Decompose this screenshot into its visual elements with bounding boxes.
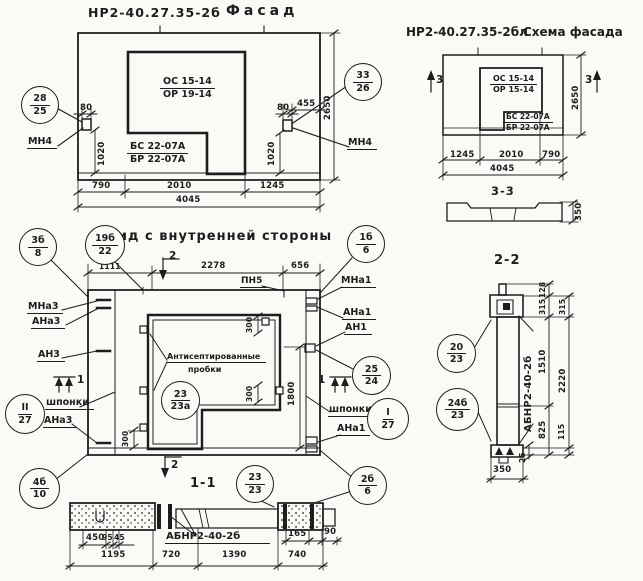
facade-panel-mark: БС 22-07А БР 22-07А <box>127 141 188 167</box>
callout-20-23: 20 23 <box>437 334 476 373</box>
dim-2220: 2220 <box>559 369 568 393</box>
dim-656: 656 <box>291 261 309 271</box>
dim-740: 740 <box>288 550 306 560</box>
callout-value-top: 2б <box>358 474 377 486</box>
callout-value-bottom: 23 <box>451 410 464 421</box>
callout-value-top: 19б <box>92 233 118 245</box>
panel-mark-top: БС 22-07А <box>127 141 188 154</box>
label-pn5: ПН5 <box>240 276 267 288</box>
label-shponki-left: шпонки <box>45 397 94 410</box>
panel-mark-top: БС 22-07А <box>503 112 553 123</box>
schema-panel-mark: БС 22-07А БР 22-07А <box>503 112 553 133</box>
callout-4b-10: 4б 10 <box>19 468 60 509</box>
callout-28-25: 28 25 <box>21 86 59 124</box>
dim-1195: 1195 <box>101 550 125 560</box>
dim-455: 455 <box>297 99 315 109</box>
label-an3: АН3 <box>37 349 65 362</box>
callout-value-bottom: 8 <box>35 248 42 259</box>
dim-350-s33: 350 <box>575 203 584 221</box>
dim-25: 25 <box>519 452 527 463</box>
inner-view-linework <box>50 258 353 510</box>
label-ana3: АНа3 <box>31 316 65 329</box>
callout-23-23: 23 23 <box>236 465 274 503</box>
dim-4045-schema: 4045 <box>490 164 514 174</box>
window-mark-top: ОС 15-14 <box>160 76 215 89</box>
schema-code: НР2-40.27.35-2бл <box>406 25 528 39</box>
section-marker-2-top: 2 <box>169 250 176 262</box>
label-mna1: МНа1 <box>340 275 376 288</box>
section-2-2-title: 2-2 <box>494 253 521 268</box>
anchor-label-mn4-left: МН4 <box>27 136 57 149</box>
dim-350-s22: 350 <box>493 465 511 475</box>
callout-value-bottom: 23а <box>171 401 191 412</box>
section-1-1-title: 1-1 <box>190 476 217 491</box>
callout-33-26: 33 26 <box>344 63 382 101</box>
callout-value-bottom: 27 <box>381 420 394 431</box>
section-2-2-panel-code: АБНР2-40-2б <box>524 356 534 432</box>
section-1-1-panel-code: АБНР2-40-2б <box>165 531 270 544</box>
callout-value-top: I <box>383 407 393 419</box>
facade-title: Фасад <box>226 3 298 19</box>
dim-1510: 1510 <box>539 350 548 374</box>
dim-825: 825 <box>539 421 548 439</box>
section-marker-3-left: 3 <box>436 74 443 86</box>
callout-I-27: I 27 <box>367 398 409 440</box>
callout-value-top: 4б <box>30 477 49 489</box>
dim-4045: 4045 <box>176 195 200 205</box>
dim-1245: 1245 <box>260 181 284 191</box>
label-ana3-bottom: АНа3 <box>43 415 77 428</box>
window-mark-top: ОС 15-14 <box>490 74 537 85</box>
dim-128: 128 <box>539 282 547 298</box>
callout-23-23a: 23 23а <box>161 381 200 420</box>
dim-2650-schema: 2650 <box>572 86 581 110</box>
dim-80-left: 80 <box>80 103 92 113</box>
dim-315-outer: 315 <box>559 299 567 315</box>
dim-2650-facade: 2650 <box>324 96 333 120</box>
schema-window-mark: ОС 15-14 ОР 15-14 <box>490 74 537 96</box>
section-3-3-title: 3-3 <box>491 184 515 198</box>
callout-value-bottom: 6 <box>364 486 371 497</box>
callout-value-bottom: 27 <box>18 415 31 426</box>
dim-790: 790 <box>92 181 110 191</box>
callout-value-bottom: 22 <box>98 246 111 257</box>
label-an1: АН1 <box>344 322 372 335</box>
dim-165: 165 <box>288 529 306 539</box>
dim-80-right: 80 <box>277 103 289 113</box>
window-mark-bottom: ОР 19-14 <box>163 89 212 101</box>
section-marker-1-right: 1 <box>318 374 325 386</box>
dim-1020-right: 1020 <box>268 142 277 166</box>
callout-value-bottom: 10 <box>33 489 46 500</box>
callout-value-top: 20 <box>447 342 466 354</box>
callout-value-top: 24б <box>445 398 471 410</box>
dim-2010-schema: 2010 <box>499 150 523 160</box>
section-marker-2-bottom: 2 <box>171 459 178 471</box>
drawing-sheet: НР2-40.27.35-2б Фасад ОС 15-14 ОР 19-14 … <box>0 0 643 581</box>
callout-II-27: II 27 <box>5 394 45 434</box>
callout-value-top: II <box>18 402 31 414</box>
callout-value-top: 23 <box>171 389 190 401</box>
schema-title: Схема фасада <box>523 25 623 39</box>
inner-view-title: Вид с внутренней стороны <box>107 229 332 244</box>
callout-value-top: 25 <box>362 364 381 376</box>
section-marker-3-right: 3 <box>585 74 592 86</box>
callout-value-bottom: 24 <box>365 376 378 387</box>
dim-300-left: 300 <box>122 431 130 447</box>
dim-2278: 2278 <box>201 261 225 271</box>
dim-1245-schema: 1245 <box>450 150 474 160</box>
dim-45: 45 <box>114 533 125 542</box>
callout-value-bottom: 25 <box>33 106 46 117</box>
dim-2010: 2010 <box>167 181 191 191</box>
facade-window-mark: ОС 15-14 ОР 19-14 <box>160 76 215 102</box>
dim-300-top: 300 <box>246 317 254 333</box>
dim-90: 90 <box>324 527 336 537</box>
callout-25-24: 25 24 <box>352 356 391 395</box>
dim-95: 95 <box>102 533 113 542</box>
label-ana1-bottom: АНа1 <box>336 423 370 436</box>
note-antiseptic-line1: Антисептированные <box>167 352 266 363</box>
label-mna3: МНа3 <box>27 301 63 314</box>
note-antiseptic-line2: пробки <box>188 365 221 374</box>
section-marker-1-left: 1 <box>77 374 84 386</box>
callout-value-bottom: 23 <box>450 354 463 365</box>
callout-2b-6: 2б 6 <box>348 466 387 505</box>
dim-1390: 1390 <box>222 550 246 560</box>
callout-24b-23: 24б 23 <box>436 388 479 431</box>
label-ana1: АНа1 <box>342 307 376 320</box>
callout-value-bottom: 6 <box>363 245 370 256</box>
callout-3b-8: 3б 8 <box>19 228 57 266</box>
dim-720: 720 <box>162 550 180 560</box>
panel-mark-bottom: БР 22-07А <box>506 123 550 133</box>
dim-300-mid: 300 <box>246 386 254 402</box>
callout-value-top: 3б <box>28 235 47 247</box>
panel-mark-bottom: БР 22-07А <box>130 154 185 166</box>
anchor-label-mn4-right: МН4 <box>347 137 377 150</box>
facade-code: НР2-40.27.35-2б <box>88 5 221 20</box>
window-mark-bottom: ОР 15-14 <box>493 85 534 95</box>
dim-1020-left: 1020 <box>98 142 107 166</box>
callout-value-bottom: 23 <box>248 485 261 496</box>
dim-790-schema: 790 <box>542 150 560 160</box>
callout-value-top: 33 <box>353 70 372 82</box>
callout-value-top: 1б <box>356 232 375 244</box>
dim-1800: 1800 <box>288 382 297 406</box>
dim-115: 115 <box>558 424 566 440</box>
callout-value-top: 28 <box>30 93 49 105</box>
callout-value-bottom: 26 <box>356 83 369 94</box>
dim-315-inner: 315 <box>539 299 547 315</box>
callout-19b-22: 19б 22 <box>85 225 125 265</box>
callout-1b-6: 1б 6 <box>347 225 385 263</box>
callout-value-top: 23 <box>245 472 264 484</box>
